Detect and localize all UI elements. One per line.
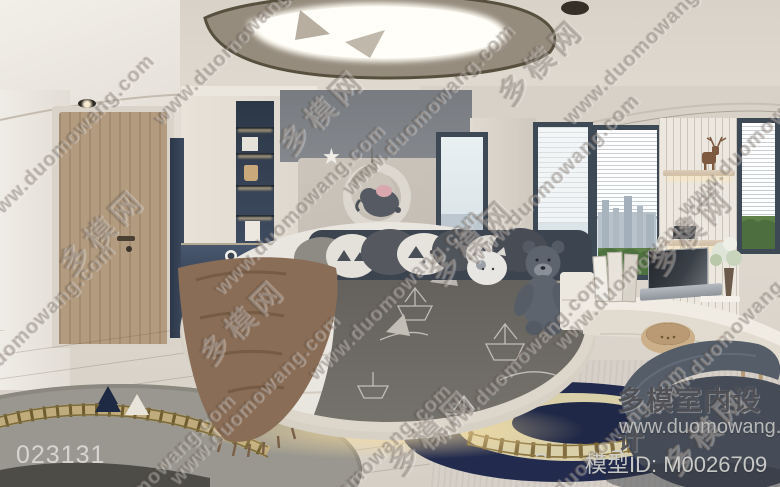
image-id-label: 023131: [16, 441, 105, 470]
watermark-url: www.duomowang.com: [340, 20, 521, 201]
watermark-url: www.duomowang.com: [560, 0, 741, 130]
model-id-label: 模型ID: M0026709: [585, 447, 767, 479]
site-url-label: www.duomowang.com: [619, 416, 780, 439]
panorama-bedroom-render: www.duomowang.com www.duomowang.com www.…: [0, 0, 780, 487]
